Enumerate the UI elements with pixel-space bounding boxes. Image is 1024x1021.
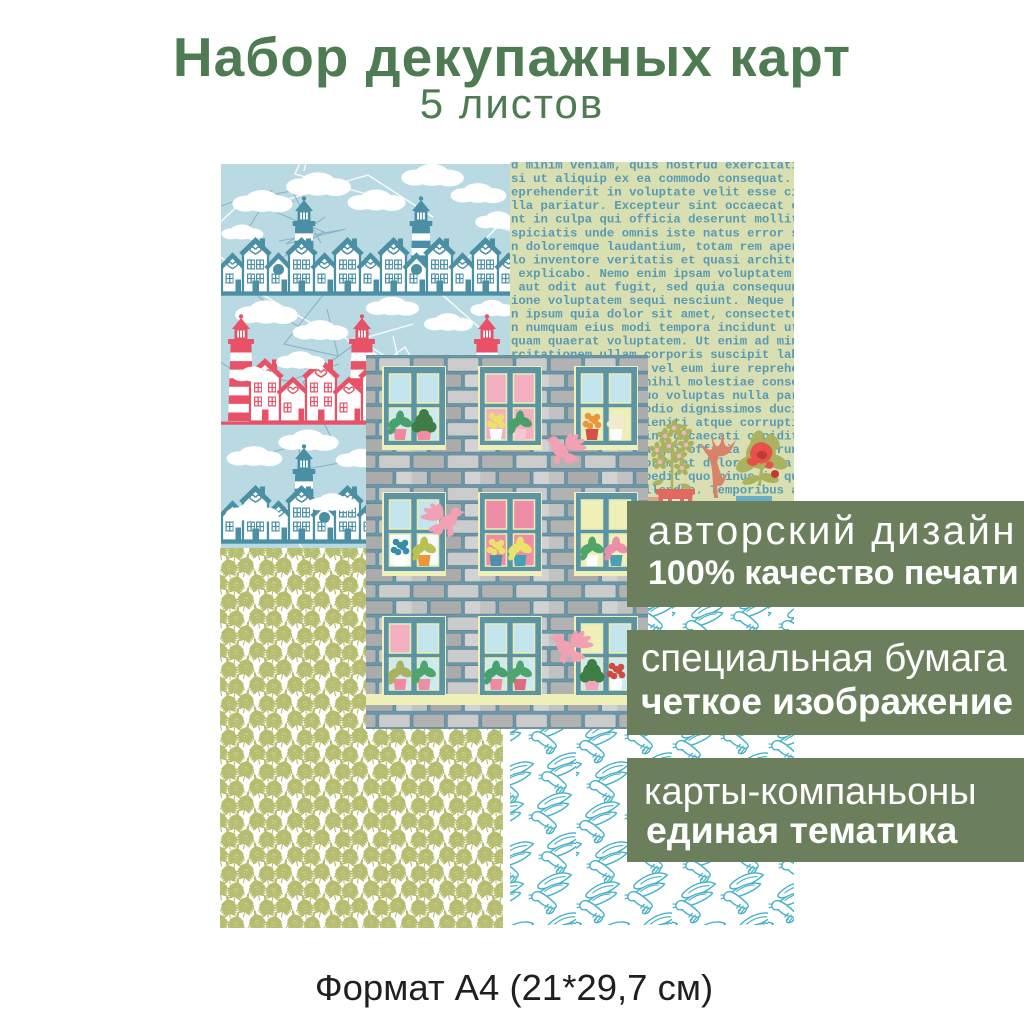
svg-text:si ut aliquip ex ea commodo co: si ut aliquip ex ea commodo consequat. D… bbox=[511, 172, 828, 186]
svg-text:n doloremque laudantium, totam: n doloremque laudantium, totam rem aperi… bbox=[511, 240, 828, 254]
svg-text:quam quaerat voluptatem. Ut en: quam quaerat voluptatem. Ut enim ad mini… bbox=[511, 335, 843, 349]
svg-text:aut odit aut fugit, sed quia c: aut odit aut fugit, sed quia consequuntu… bbox=[511, 281, 858, 295]
svg-text:lo inventore veritatis et quas: lo inventore veritatis et quasi architec… bbox=[511, 253, 843, 267]
svg-text:ione voluptatem sequi nesciunt: ione voluptatem sequi nesciunt. Neque po… bbox=[511, 294, 850, 308]
svg-text:n ipsum quia dolor sit amet, c: n ipsum quia dolor sit amet, consectetur… bbox=[511, 308, 850, 322]
svg-text:spiciatis unde omnis iste natu: spiciatis unde omnis iste natus error si… bbox=[511, 226, 836, 240]
svg-text:n numquam eius modi tempora in: n numquam eius modi tempora incidunt ut … bbox=[511, 321, 843, 335]
svg-text:lla pariatur. Excepteur sint o: lla pariatur. Excepteur sint occaecat cu… bbox=[511, 199, 836, 213]
svg-text:nt in culpa qui officia deseru: nt in culpa qui officia deserunt mollit … bbox=[511, 213, 873, 227]
svg-text:explicabo. Nemo enim ipsam vol: explicabo. Nemo enim ipsam voluptatem qu… bbox=[511, 267, 844, 281]
svg-text:eprehenderit in voluptate veli: eprehenderit in voluptate velit esse cil… bbox=[511, 186, 828, 200]
svg-text:d minim veniam, quis nostrud e: d minim veniam, quis nostrud exercitatio bbox=[511, 159, 806, 173]
